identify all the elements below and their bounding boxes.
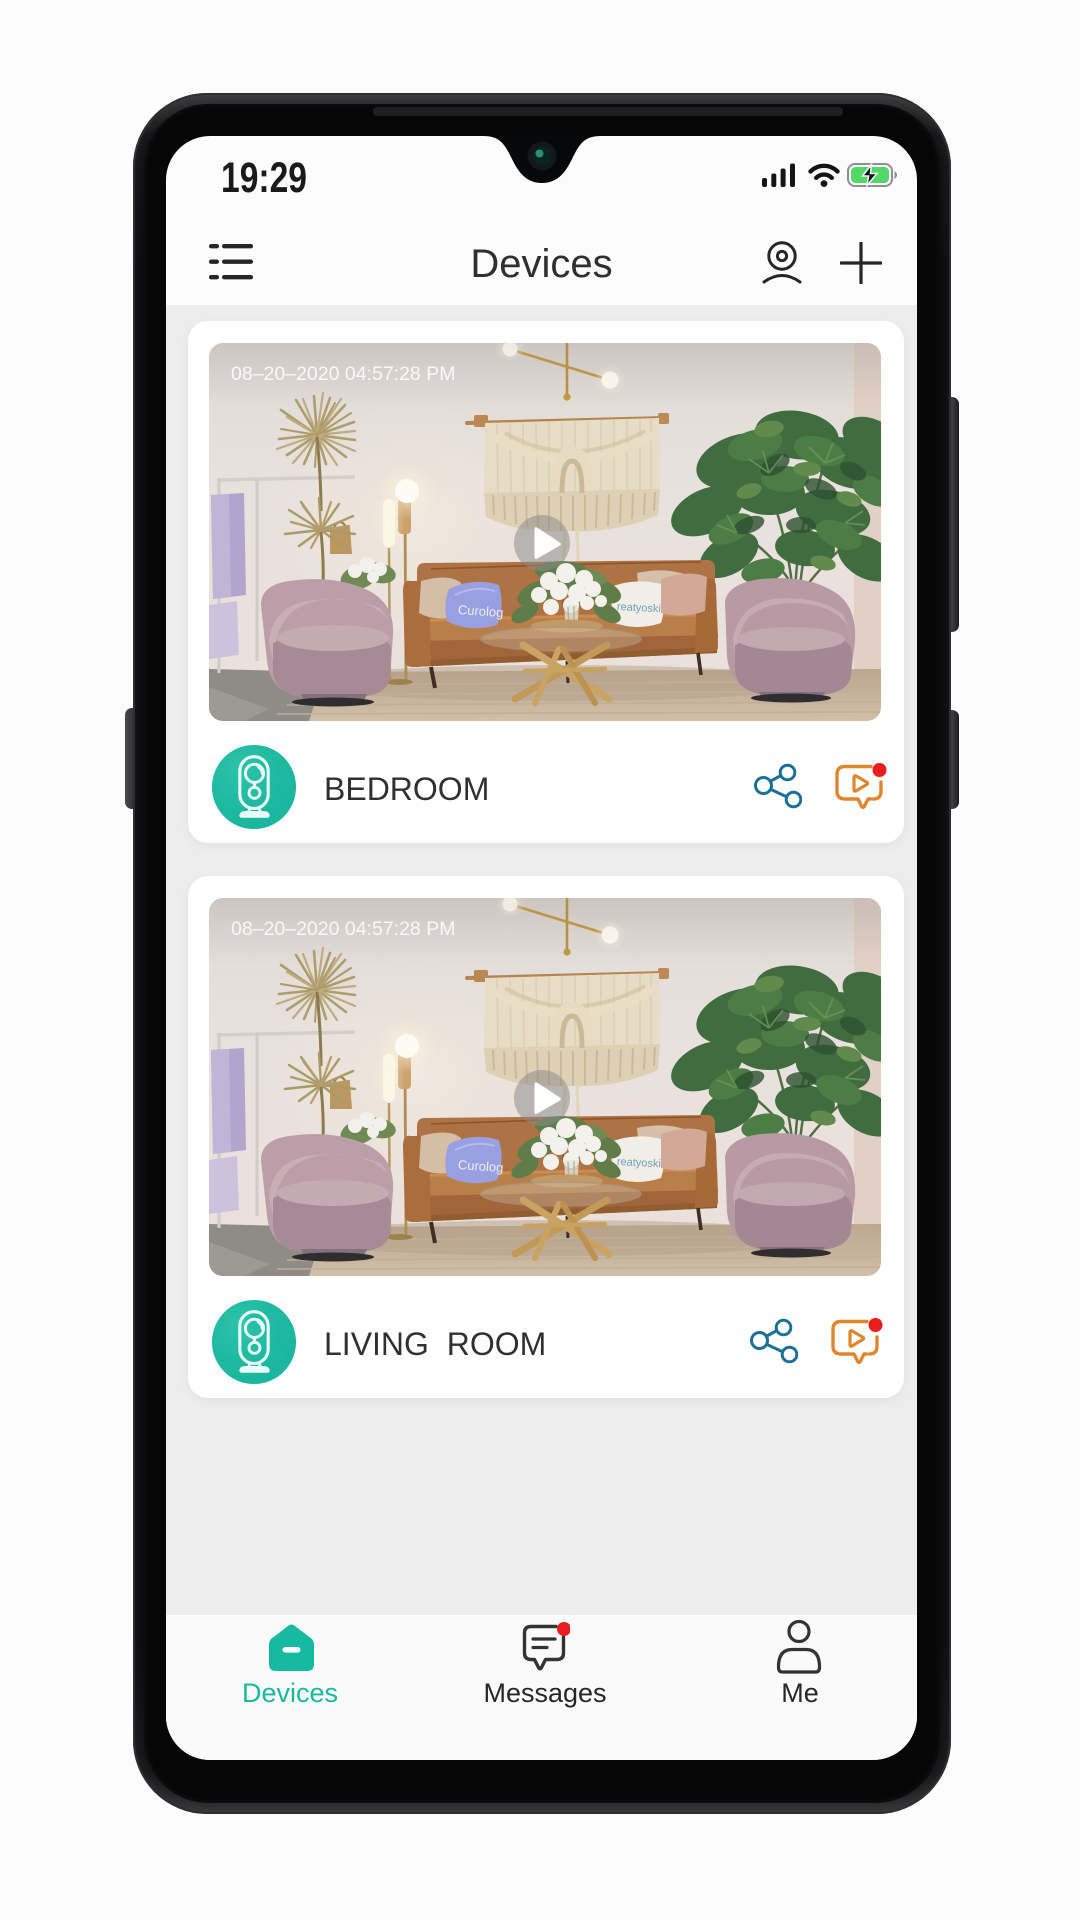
svg-text:19:29: 19:29 (221, 154, 307, 201)
